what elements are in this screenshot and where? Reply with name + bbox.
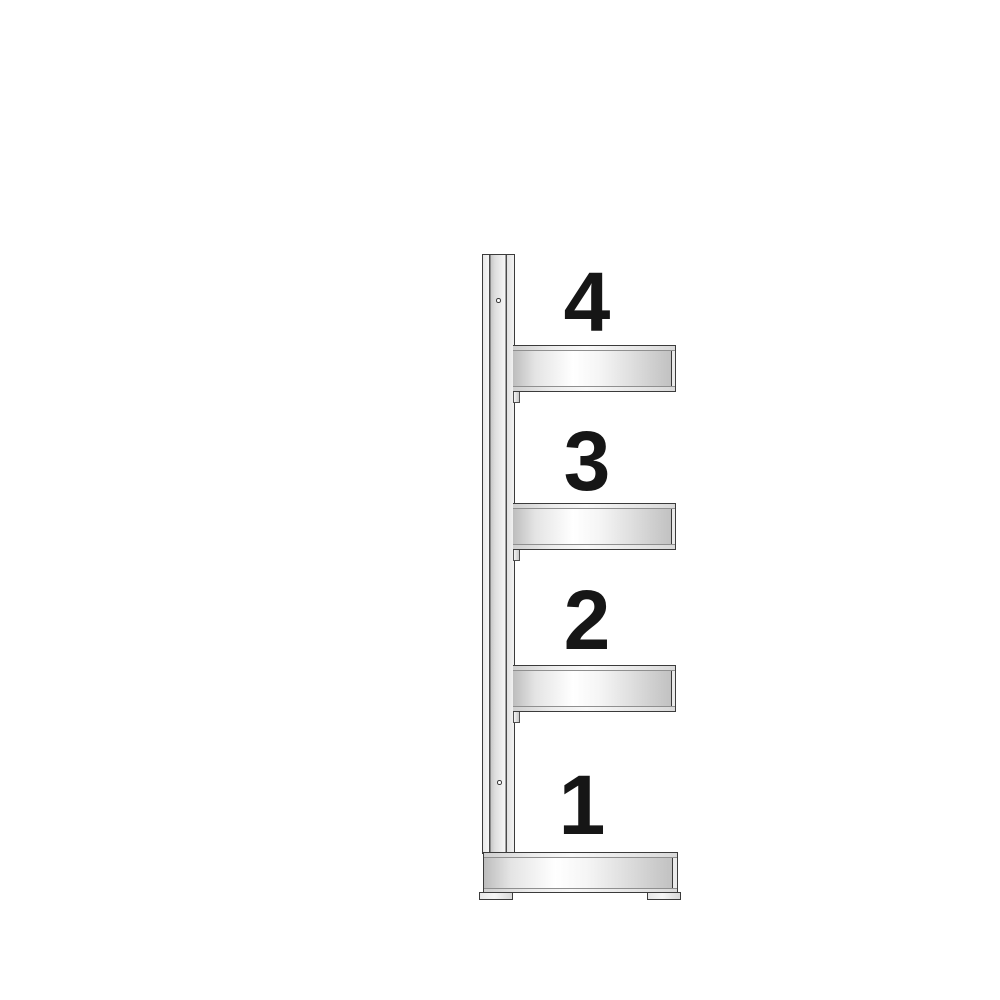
base-foot-right — [647, 892, 681, 900]
shelf-surface — [513, 509, 672, 544]
shelf-bottom-lip — [513, 544, 675, 550]
shelf-surface — [513, 351, 672, 386]
shelf-arm-level-3 — [513, 503, 676, 550]
level-label-1: 1 — [522, 763, 642, 847]
post-hole-top — [496, 298, 501, 303]
shelf-bottom-lip — [513, 386, 675, 392]
level-label-2: 2 — [527, 578, 647, 662]
shelf-arm-level-2 — [513, 665, 676, 712]
base-foot-left — [479, 892, 513, 900]
level-label-3: 3 — [527, 419, 647, 503]
base-shelf-level-1 — [483, 852, 678, 893]
shelving-diagram: 4 3 2 1 — [0, 0, 1000, 1000]
shelf-surface — [513, 671, 672, 706]
shelf-bottom-lip — [513, 706, 675, 712]
base-surface — [484, 858, 673, 888]
post-hole-bottom — [497, 780, 502, 785]
shelf-arm-level-4 — [513, 345, 676, 392]
level-label-4: 4 — [527, 260, 647, 344]
upright-post — [482, 254, 515, 854]
